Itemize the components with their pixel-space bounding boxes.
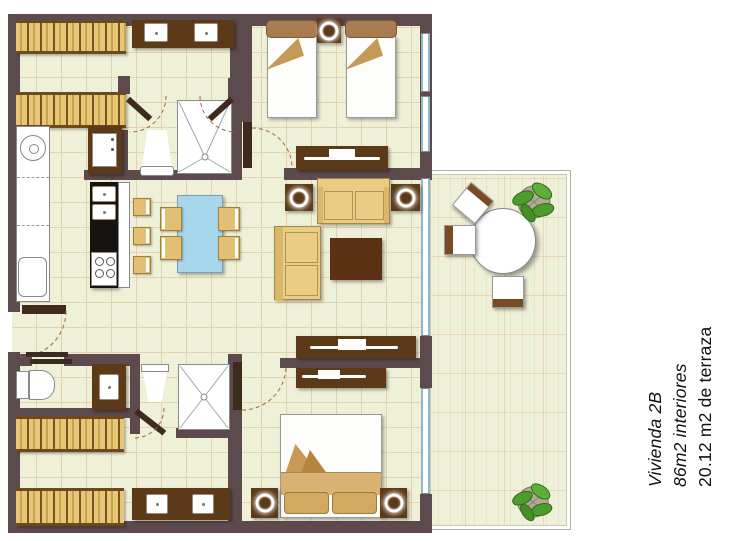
island-counter-strip bbox=[118, 182, 130, 288]
bidet-bowl bbox=[143, 372, 167, 402]
counter-divider bbox=[17, 225, 49, 226]
headboard bbox=[345, 20, 397, 38]
window-bedroom2-a bbox=[421, 33, 430, 92]
sink bbox=[99, 374, 119, 400]
shower-bath2 bbox=[178, 364, 230, 430]
sofa-arm bbox=[384, 187, 389, 223]
sliding-door-rail bbox=[30, 359, 72, 364]
bidet bbox=[141, 364, 169, 404]
sofa-cushion bbox=[324, 191, 353, 220]
wardrobe-dressing-bottom bbox=[16, 488, 124, 526]
toilet-tank bbox=[16, 371, 29, 399]
dining-table bbox=[177, 195, 223, 273]
double-sink-vanity-dressing bbox=[132, 488, 230, 520]
door-arc-bedroom2 bbox=[246, 118, 298, 172]
island-stool bbox=[133, 256, 151, 274]
glass-door-living-terrace bbox=[421, 178, 430, 336]
window-bedroom2-b bbox=[421, 96, 430, 152]
tv-base bbox=[338, 339, 366, 350]
island-sink bbox=[92, 204, 116, 220]
door-arc-masterbed bbox=[238, 360, 290, 414]
loveseat bbox=[274, 226, 321, 300]
pillow bbox=[284, 492, 329, 514]
dining-chair bbox=[218, 207, 240, 231]
sink bbox=[146, 494, 168, 514]
wall-bedroom2-left-mid bbox=[242, 78, 252, 122]
washing-machine bbox=[20, 135, 46, 161]
tv-console-living bbox=[296, 336, 416, 358]
sink bbox=[144, 23, 168, 42]
vanity-bath2 bbox=[92, 364, 126, 410]
toilet-bowl bbox=[29, 370, 55, 400]
loveseat-back bbox=[275, 227, 283, 301]
nightstand-lamp-left bbox=[251, 488, 278, 518]
wall-living-masterbed bbox=[280, 358, 432, 368]
floorplan: Vivienda 2B 86m2 interiores 20.12 m2 de … bbox=[0, 0, 730, 541]
potted-plant-bottom bbox=[512, 481, 554, 523]
island-sink bbox=[92, 186, 116, 202]
sliding-door-rail bbox=[26, 352, 68, 357]
side-table-lamp-left bbox=[285, 184, 313, 211]
double-sink-vanity-top bbox=[132, 20, 234, 48]
caption-terrace-area: 20.12 m2 de terraza bbox=[693, 287, 718, 487]
terrace-chair bbox=[444, 225, 476, 255]
plan-caption: Vivienda 2B 86m2 interiores 20.12 m2 de … bbox=[643, 287, 723, 487]
dining-chair bbox=[160, 236, 182, 260]
bidet-tank bbox=[141, 364, 169, 372]
dining-chair bbox=[218, 236, 240, 260]
terrace-chair bbox=[492, 276, 524, 308]
nightstand-lamp-right bbox=[380, 488, 407, 518]
door-arc-bath1-right bbox=[196, 92, 240, 136]
loveseat-cushion bbox=[285, 232, 318, 263]
wardrobe-top-row bbox=[16, 20, 126, 54]
dining-chair bbox=[160, 207, 182, 231]
oven-column bbox=[88, 126, 122, 174]
counter-divider bbox=[17, 177, 49, 178]
island-stool bbox=[133, 198, 151, 216]
twin-bed-2 bbox=[345, 20, 397, 118]
sofa-arm bbox=[318, 187, 323, 223]
shower-glass-lines bbox=[179, 365, 229, 429]
headboard bbox=[266, 20, 318, 38]
sink bbox=[192, 494, 214, 514]
sink bbox=[194, 23, 218, 42]
island-stool bbox=[133, 227, 151, 245]
glass-door-bedroom-terrace bbox=[421, 388, 430, 494]
oven-knob bbox=[111, 148, 114, 151]
dishwasher bbox=[18, 257, 47, 297]
door-arc-bath2 bbox=[130, 404, 170, 444]
dresser-bedroom2 bbox=[296, 146, 388, 170]
sofa bbox=[317, 178, 390, 224]
toilet-bath2 bbox=[16, 370, 56, 402]
tv-console-masterbed bbox=[296, 368, 386, 388]
caption-interior-area: 86m2 interiores bbox=[668, 287, 693, 487]
loveseat-cushion bbox=[285, 265, 318, 296]
toilet-base bbox=[140, 166, 174, 176]
wardrobe-second-row bbox=[16, 92, 126, 128]
nightstand-lamp-between-beds bbox=[317, 18, 341, 43]
potted-plant-top bbox=[512, 180, 556, 224]
tv-base bbox=[329, 149, 355, 160]
twin-bed-1 bbox=[266, 20, 318, 118]
side-table-lamp-right bbox=[391, 184, 420, 211]
door-arc-bath1-left bbox=[126, 92, 170, 136]
wardrobe-dressing-top bbox=[16, 416, 124, 452]
oven-knob bbox=[111, 138, 114, 141]
stove bbox=[91, 252, 117, 286]
kitchen-counter bbox=[16, 126, 50, 302]
double-bed bbox=[280, 414, 382, 520]
caption-title: Vivienda 2B bbox=[643, 287, 668, 487]
pillow bbox=[332, 492, 377, 514]
kitchen-island bbox=[90, 182, 118, 288]
wall-right-bottom bbox=[420, 494, 432, 533]
tv-base bbox=[318, 370, 340, 379]
sofa-cushion bbox=[355, 191, 384, 220]
coffee-table bbox=[330, 238, 382, 280]
